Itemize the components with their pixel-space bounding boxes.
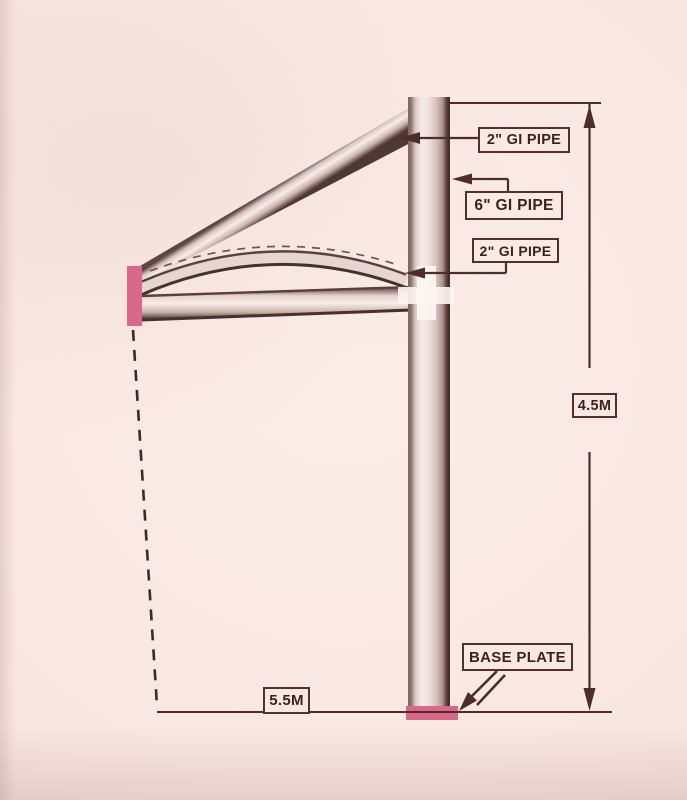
label-2in-gi-pipe-arch: 2" GI PIPE	[472, 238, 559, 263]
end-plate	[127, 266, 142, 326]
paper-background: 2" GI PIPE 6" GI PIPE 2" GI PIPE 4.5M 5.…	[0, 0, 687, 800]
column-pipe	[408, 97, 450, 710]
leader-arrow-pipe6-icon	[452, 174, 472, 185]
label-width-dimension: 5.5M	[263, 687, 310, 714]
leader-line-baseplate-2	[477, 675, 505, 705]
leader-line-baseplate-1	[469, 671, 497, 699]
height-dimension-arrow-down-icon	[584, 688, 596, 711]
label-base-plate: BASE PLATE	[462, 643, 573, 671]
label-6in-gi-pipe: 6" GI PIPE	[465, 191, 563, 220]
height-dimension-arrow-up-icon	[584, 105, 596, 128]
label-height-dimension: 4.5M	[572, 393, 617, 418]
label-2in-gi-pipe-top: 2" GI PIPE	[478, 127, 570, 153]
joint-glare-horizontal	[398, 287, 454, 304]
projection-dashed-line	[133, 330, 157, 706]
